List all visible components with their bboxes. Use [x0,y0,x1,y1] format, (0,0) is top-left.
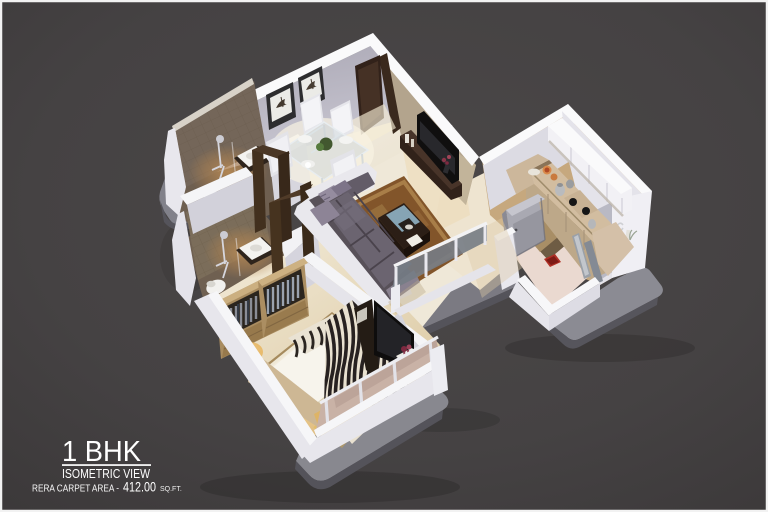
svg-text:RERA CARPET AREA -: RERA CARPET AREA - [32,484,119,495]
svg-text:SQ.FT.: SQ.FT. [160,486,182,493]
svg-text:412.00: 412.00 [123,480,156,495]
svg-text:1 BHK: 1 BHK [62,436,141,468]
